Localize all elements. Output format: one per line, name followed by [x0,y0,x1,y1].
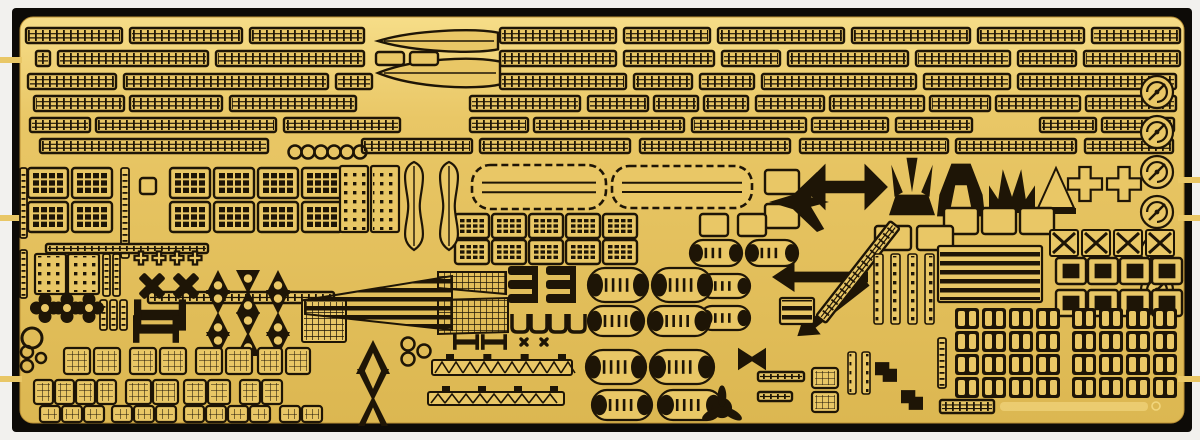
etched-part [1153,331,1177,352]
door-panel [235,188,241,193]
door-panel [175,188,181,193]
etched-part [529,240,563,264]
rail-posts [28,30,120,41]
door-panel [517,230,522,233]
raft-lashing [690,278,693,292]
door-panel [578,224,583,227]
door-leaf [1023,357,1030,372]
door-leaf [1039,357,1046,372]
frame-part [140,178,156,194]
door-leaf [1039,380,1046,395]
door-leaf [969,311,976,326]
etched-part [110,300,117,330]
etched-part [1072,331,1096,352]
door-leaf [1113,311,1120,326]
door-leaf [1012,380,1019,395]
dblT-part [503,334,507,350]
etched-part [758,372,804,381]
door-panel [175,222,181,227]
mounting-tab [0,215,22,221]
raft-end [698,355,713,378]
door-panel [85,173,91,178]
door-panel [534,256,539,259]
etched-part [258,202,298,232]
door-leaf [985,311,992,326]
raft-lashing [682,360,685,374]
photo-etch-sheet-art [0,0,1200,440]
etched-part [1146,230,1174,256]
door-panel [41,188,47,193]
door-panel [199,188,205,193]
door-panel [183,180,189,185]
rail-posts [32,120,88,130]
door-panel [534,219,539,222]
etched-part [746,240,798,266]
dblT-part [481,334,485,350]
door-panel [571,219,576,222]
door-panel [93,207,99,212]
etched-part [848,352,856,394]
etched-part [908,254,917,324]
ladder-rungs [112,302,116,328]
door-panel [41,207,47,212]
door-leaf [1075,311,1082,326]
etched-part [1153,354,1177,375]
rail-posts [502,30,614,41]
dblT-part [475,334,479,350]
door-panel [504,245,509,248]
etched-part [68,254,99,294]
door-panel [175,207,181,212]
door-panel [497,224,502,227]
frame-part [738,214,766,236]
etched-part [153,380,178,404]
etched-part [650,350,714,384]
raft-lashing [683,278,686,292]
etched-part [302,406,322,422]
door-leaf [1086,334,1093,349]
etched-part [955,354,979,375]
raft-lashing [626,278,629,292]
door-panel [473,250,478,253]
raft-lashing [721,281,724,291]
door-panel [615,230,620,233]
door-leaf [958,380,965,395]
door-panel [608,256,613,259]
door-panel [460,245,465,248]
rail-posts [758,98,822,109]
door-panel [287,222,293,227]
door-panel [323,222,329,227]
door-panel [510,230,515,233]
rail-posts [232,98,354,109]
guard-ring [243,301,253,311]
etched-part [160,348,186,374]
hatch-grid [199,351,219,371]
rail-posts [720,30,842,41]
plate-holes [70,256,97,292]
etched-part [226,348,252,374]
raft-end [729,244,741,262]
door-panel [183,214,189,219]
door-panel [235,173,241,178]
door-panel [480,224,485,227]
door-panel [263,180,269,185]
door-leaf [1050,311,1057,326]
frame-opening [1127,264,1144,279]
rail-posts [702,76,752,87]
rail-posts [694,120,804,130]
raft-lashing [611,315,614,327]
door-panel [608,224,613,227]
raft-end [589,311,602,331]
door-leaf [1140,334,1147,349]
etched-part [738,214,766,236]
door-leaf [1102,334,1109,349]
door-panel [33,214,39,219]
door-leaf [1129,380,1136,395]
etched-part [690,240,742,266]
door-panel [315,207,321,212]
door-panel [517,224,522,227]
raft-end [738,278,750,294]
raft-lashing [616,399,619,411]
etched-part [566,214,600,238]
raft-lashing [728,313,731,323]
etched-part [438,298,508,334]
truss-fitting [446,354,454,360]
hatch-grid [211,383,227,401]
etched-part [1009,377,1033,398]
rail-posts [126,76,326,87]
rail-posts [814,120,886,130]
door-leaf [969,334,976,349]
etched-part [170,202,210,232]
raft-lashing [603,360,606,374]
door-panel [243,180,249,185]
door-leaf [1012,311,1019,326]
door-panel [315,188,321,193]
etched-part [812,392,838,412]
door-panel [497,256,502,259]
door-panel [85,214,91,219]
door-panel [480,245,485,248]
door-panel [227,188,233,193]
raft-lashing [612,278,615,292]
door-leaf [996,380,1003,395]
rail-posts [98,120,274,130]
door-leaf [1156,357,1163,372]
etched-part [55,380,74,404]
rail-posts [286,120,398,130]
raft-lashing [697,399,700,411]
door-panel [591,230,596,233]
door-panel [323,173,329,178]
door-panel [504,256,509,259]
ladder-rungs [115,256,119,294]
raft-end [589,273,603,296]
door-leaf [958,357,965,372]
etched-part [1009,331,1033,352]
door-panel [504,250,509,253]
raft-lashing [761,248,764,258]
etched-part [250,406,270,422]
door-panel [621,230,626,233]
door-panel [591,219,596,222]
door-panel [467,250,472,253]
etched-part [588,268,648,302]
etched-part [76,380,95,404]
door-panel [41,222,47,227]
etched-part [700,214,728,236]
door-panel [460,219,465,222]
door-panel [279,188,285,193]
door-panel [191,207,197,212]
etched-part [1072,354,1096,375]
door-leaf [1129,311,1136,326]
hatch-grid [187,409,201,419]
door-leaf [1050,334,1057,349]
door-panel [615,245,620,248]
door-leaf [969,357,976,372]
door-panel [510,219,515,222]
door-panel [467,230,472,233]
ladder-rungs [122,302,126,328]
etched-part [492,214,526,238]
dblT-part [453,334,457,350]
rail-posts [1086,53,1178,64]
door-panel [307,173,313,178]
plate-holes [342,168,366,230]
etched-part [1126,331,1150,352]
door-panel [183,207,189,212]
etched-part [1114,230,1142,256]
rail-posts [854,30,968,41]
hatch-grid [133,351,153,371]
door-panel [578,219,583,222]
louver-slats [782,300,812,322]
strip-holes [850,354,855,392]
door-panel [584,250,589,253]
door-panel [49,173,55,178]
etched-part [1141,76,1173,108]
etched-part [28,202,68,232]
etched-part [72,168,112,198]
rail-posts [42,141,266,151]
door-leaf [1086,357,1093,372]
dblT-part [173,315,179,343]
door-panel [41,173,47,178]
faint-etched-text-band [1000,402,1148,411]
etched-part [130,348,156,374]
etched-part [156,406,176,422]
etched-part [228,406,248,422]
hatch-grid [67,351,87,371]
louver-slats [940,248,1040,300]
door-panel [578,256,583,259]
door-panel [460,256,465,259]
door-panel [85,222,91,227]
door-panel [57,188,63,193]
door-panel [541,250,546,253]
raft-lashing [676,278,679,292]
railing-row [40,139,1173,153]
deck-platform [612,166,752,208]
door-leaf [958,334,965,349]
door-leaf [1113,334,1120,349]
raft-lashing [610,360,613,374]
door-panel [243,173,249,178]
raft-lashing [609,399,612,411]
etched-part [592,390,652,420]
hatch-grid [159,409,173,419]
door-panel [497,245,502,248]
rail-posts [1042,120,1094,130]
door-panel [101,173,107,178]
dblT-part [453,339,479,344]
door-panel [77,180,83,185]
etched-part [1099,308,1123,329]
door-panel [467,219,472,222]
door-panel [49,207,55,212]
raft-lashing [689,360,692,374]
raft-lashing [672,315,675,327]
door-panel [473,245,478,248]
door-panel [323,188,329,193]
door-leaf [1140,357,1147,372]
raft-end [695,311,710,331]
door-leaf [1075,334,1082,349]
door-panel [608,230,613,233]
mounting-tab [0,57,22,63]
etched-part [1099,377,1123,398]
guard-ring [273,323,283,333]
raft-lashing [768,248,771,258]
etched-part [1050,230,1078,256]
door-panel [517,256,522,259]
etched-part [1120,258,1150,284]
door-panel [534,230,539,233]
guard-ring [273,281,283,291]
raft-end [649,311,664,331]
door-panel [49,222,55,227]
rail-posts [958,141,1074,151]
rail-posts [626,53,712,64]
rail-posts [218,53,362,64]
door-panel [621,256,626,259]
door-panel [628,230,633,233]
door-leaf [958,311,965,326]
etched-part [874,254,883,324]
truss-fitting [442,386,450,392]
door-leaf [1012,357,1019,372]
door-panel [510,224,515,227]
door-panel [271,222,277,227]
door-panel [628,219,633,222]
etched-part [925,254,934,324]
door-panel [219,173,225,178]
hatch-grid [229,351,249,371]
door-panel [554,256,559,259]
etched-part [546,266,576,303]
door-panel [554,219,559,222]
railing-row [34,96,1176,111]
tulip-part [889,195,935,216]
etched-part [20,168,27,238]
truss-fitting [514,386,522,392]
etched-panel [438,298,508,334]
etched-part [1099,354,1123,375]
etched-part [1126,308,1150,329]
door-panel [460,250,465,253]
door-leaf [985,380,992,395]
etched-part [184,380,206,404]
hatch-grid [43,409,57,419]
door-panel [497,230,502,233]
rail-posts [832,98,922,109]
hatch-grid [253,409,267,419]
door-panel [287,180,293,185]
hatch-grid [129,383,148,401]
door-panel [584,219,589,222]
door-panel [191,214,197,219]
door-leaf [1113,380,1120,395]
door-leaf [1050,380,1057,395]
door-panel [571,250,576,253]
etched-part [1141,116,1173,148]
truss-fitting [550,386,558,392]
door-leaf [1102,357,1109,372]
radar-hub [1155,170,1160,175]
etched-part [240,380,260,404]
rail-posts [724,53,778,64]
etched-part [208,380,230,404]
door-panel [467,245,472,248]
raft-end [747,244,759,262]
etched-part [371,166,399,232]
etched-part [588,306,644,336]
mounting-tab [0,376,22,382]
door-leaf [1129,334,1136,349]
door-panel [547,219,552,222]
door-panel [504,219,509,222]
door-panel [571,256,576,259]
door-panel [331,214,337,219]
etched-part [1082,230,1110,256]
door-leaf [1050,357,1057,372]
door-panel [287,207,293,212]
door-leaf [1167,380,1174,395]
door-panel [510,245,515,248]
etched-part [112,406,132,422]
radar-hub [1155,210,1160,215]
railing-row [36,51,1180,66]
door-panel [584,245,589,248]
door-panel [57,222,63,227]
etched-part [1009,354,1033,375]
door-leaf [1102,380,1109,395]
door-panel [77,214,83,219]
door-panel [77,207,83,212]
door-leaf [1156,311,1163,326]
door-panel [57,173,63,178]
hatch-grid [261,351,279,371]
door-panel [93,214,99,219]
door-panel [85,180,91,185]
door-panel [307,214,313,219]
etched-part [1072,377,1096,398]
etched-part [1020,208,1054,234]
